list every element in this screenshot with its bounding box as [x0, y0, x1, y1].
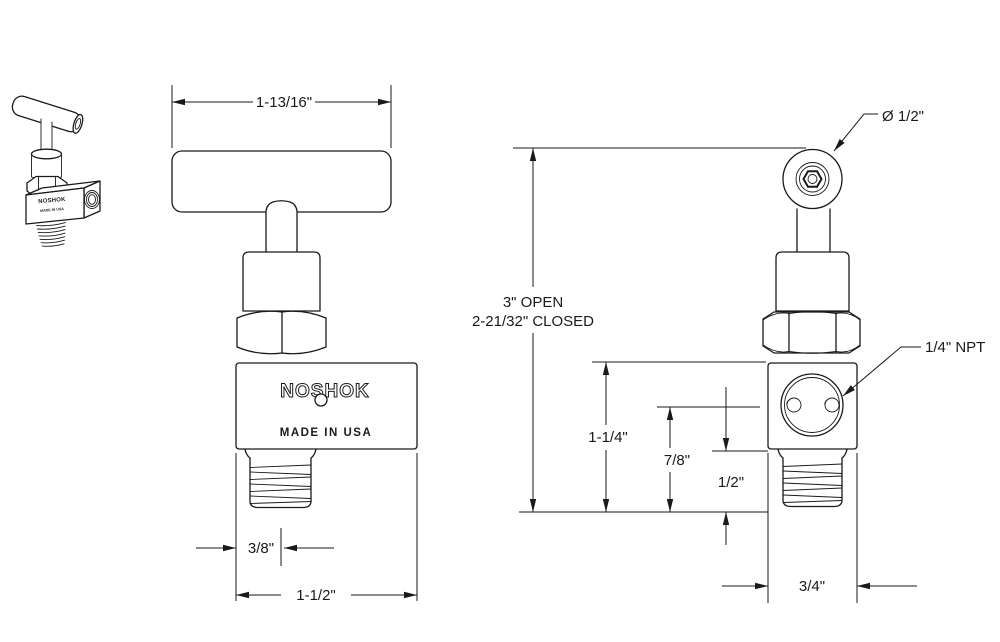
- front-view: NOSHOK MADE IN USA 1-13/16": [172, 85, 417, 604]
- side-handle: [783, 150, 842, 209]
- label-npt-port: 1/4" NPT: [843, 339, 985, 396]
- dim-body-depth: 3/4": [722, 578, 917, 595]
- thumbnail-stem: [41, 118, 52, 153]
- thumbnail-body-front: [26, 188, 84, 224]
- product-thumbnail: NOSHOK MADE IN USA: [10, 94, 100, 248]
- svg-text:1-13/16": 1-13/16": [256, 94, 312, 111]
- thumbnail-threads: [37, 223, 68, 248]
- dim-port-centerline-height: 7/8": [664, 407, 690, 512]
- side-hex-nut: [763, 312, 860, 354]
- dim-handle-diameter-label: Ø 1/2": [882, 108, 924, 125]
- front-bonnet: [243, 252, 320, 311]
- origin-text: MADE IN USA: [280, 427, 373, 439]
- dim-closed-height: 2-21/32" CLOSED: [472, 313, 594, 330]
- svg-text:1/2": 1/2": [718, 474, 744, 491]
- dim-body-width: 1-1/2": [236, 453, 417, 604]
- svg-text:1-1/2": 1-1/2": [296, 587, 336, 604]
- svg-text:1-1/4": 1-1/4": [588, 429, 628, 446]
- side-stem: [797, 209, 830, 252]
- dim-open-height: 3" OPEN: [503, 294, 563, 311]
- label-npt-port-text: 1/4" NPT: [925, 339, 985, 356]
- dim-body-top-height: 1-1/4": [588, 362, 628, 512]
- svg-text:7/8": 7/8": [664, 452, 690, 469]
- front-threaded-port: [245, 449, 316, 508]
- svg-text:3/4": 3/4": [799, 578, 825, 595]
- dim-port-offset: 3/8": [196, 528, 334, 566]
- valve-drawing: NOSHOK MADE IN USA NOSHOK MADE IN USA: [0, 0, 1000, 642]
- drawing-sheet: NOSHOK MADE IN USA NOSHOK MADE IN USA: [0, 0, 1000, 642]
- dim-handle-width: 1-13/16": [172, 85, 391, 148]
- dim-lower-body-height: 1/2": [718, 387, 744, 545]
- dim-handle-diameter: Ø 1/2": [834, 108, 924, 151]
- dim-overall-height: 3" OPEN 2-21/32" CLOSED: [472, 148, 594, 512]
- side-threaded-port: [778, 449, 847, 507]
- brand-logo-ring: [315, 394, 327, 406]
- front-stem: [266, 201, 297, 252]
- svg-text:3/8": 3/8": [248, 540, 274, 557]
- side-bonnet: [776, 252, 849, 311]
- side-view: 3" OPEN 2-21/32" CLOSED 1-1/4" 7/8" 1/2"…: [472, 108, 985, 603]
